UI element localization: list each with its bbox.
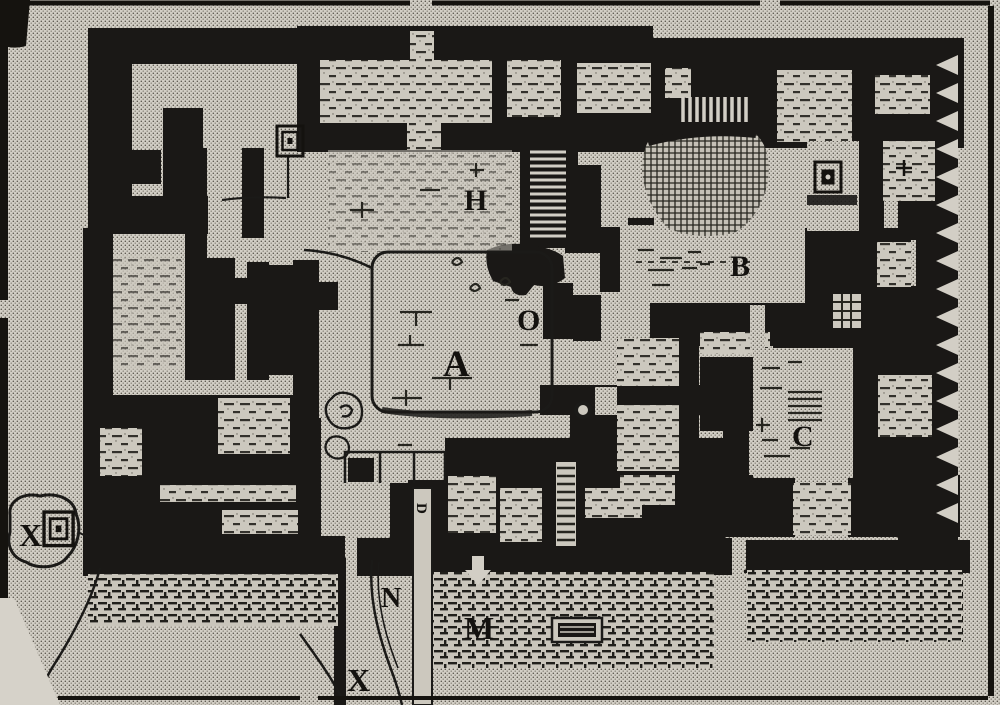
- room-floor: [793, 483, 851, 535]
- rubble-field: [747, 570, 963, 642]
- room-floor: [218, 398, 290, 454]
- wall-segment: [432, 488, 448, 540]
- area-label-d: D: [413, 503, 429, 514]
- wall-segment: [543, 283, 573, 339]
- room-floor: [222, 510, 298, 534]
- wall-segment: [700, 357, 754, 431]
- wall-segment: [83, 536, 345, 576]
- wall-segment: [185, 258, 235, 380]
- room-floor: [777, 70, 852, 142]
- wall-segment: [185, 148, 207, 258]
- room-divider: [807, 195, 857, 205]
- room-floor: [448, 476, 496, 533]
- room-floor: [113, 255, 181, 370]
- wall-segment: [242, 148, 264, 238]
- plan-canvas: H B O A C X D N M X: [0, 0, 1000, 705]
- room-floor: [875, 75, 930, 114]
- area-label-m: M: [464, 610, 494, 646]
- room-floor: [620, 475, 675, 505]
- wall-segment: [723, 428, 749, 478]
- wall-segment: [357, 538, 413, 576]
- area-label-a: A: [443, 344, 470, 385]
- room-floor: [877, 242, 911, 287]
- area-label-c: C: [792, 420, 814, 453]
- room-floor: [407, 120, 441, 150]
- room-floor: [617, 338, 679, 386]
- room-floor: [410, 31, 434, 60]
- border-corner-blob: [0, 0, 30, 48]
- room-floor: [665, 68, 691, 98]
- wall-segment: [573, 295, 601, 341]
- area-label-h: H: [464, 184, 487, 217]
- room-floor: [500, 488, 542, 542]
- room-floor: [577, 63, 651, 113]
- room-floor: [878, 375, 932, 437]
- area-label-x-south: X: [347, 662, 370, 698]
- room-floor: [883, 141, 935, 201]
- rubble-field: [88, 574, 338, 626]
- room-floor: [507, 60, 561, 117]
- wall-segment: [280, 282, 338, 310]
- area-label-n: N: [381, 583, 401, 614]
- basin-fill: [558, 623, 596, 637]
- room-floor: [320, 60, 492, 123]
- scanned-excavation-plan: H B O A C X D N M X: [0, 0, 1000, 705]
- wall-segment: [565, 165, 601, 253]
- wall-segment: [744, 540, 970, 573]
- drain-corridor: [413, 488, 432, 705]
- room-floor: [100, 428, 142, 476]
- ring-marker: [576, 403, 590, 417]
- wall-segment: [113, 150, 161, 184]
- area-label-b: B: [730, 250, 750, 283]
- room-floor: [160, 485, 296, 502]
- doorway-gap: [750, 305, 765, 350]
- wall-segment: [348, 458, 374, 482]
- room-floor: [617, 405, 679, 471]
- wall-segment: [700, 475, 795, 537]
- staircase-floor: [556, 462, 576, 546]
- wall-segment: [857, 118, 884, 244]
- area-label-o: O: [517, 304, 540, 337]
- staircase-icon: [530, 152, 566, 236]
- wall-segment: [677, 340, 699, 508]
- area-label-x-west: X: [19, 517, 42, 553]
- doorway-gap: [595, 387, 617, 415]
- doorway-gap: [732, 540, 746, 570]
- court-b-floor: [620, 225, 805, 303]
